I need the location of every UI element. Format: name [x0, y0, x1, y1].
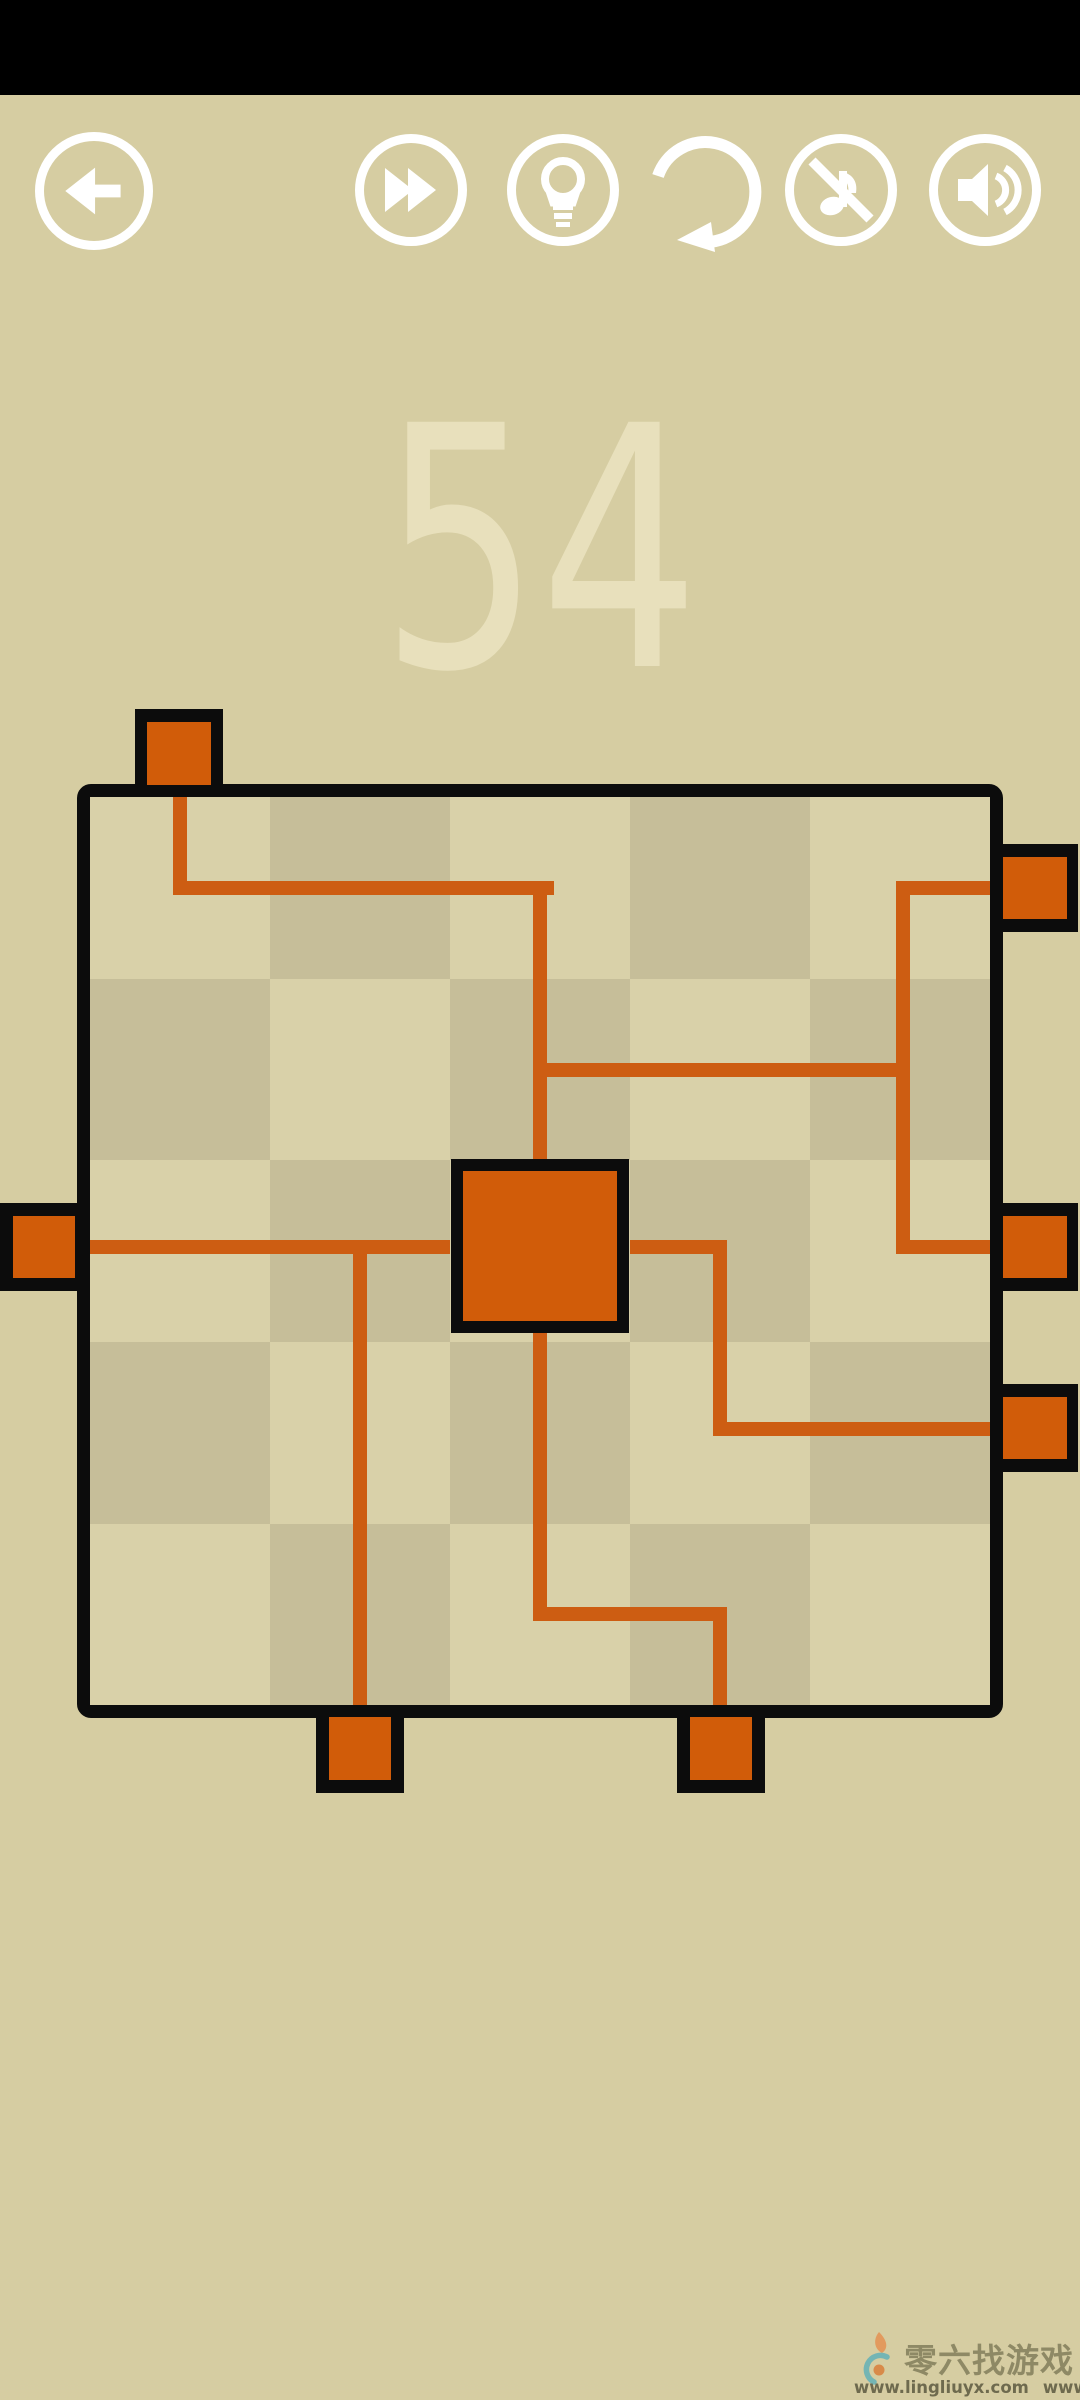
board-cell [810, 1524, 990, 1705]
pipe-segment [90, 1240, 450, 1254]
watermark: 零六找游戏 www.lingliuyx.comwww.06zyx.com [850, 2324, 1074, 2400]
board-cell [270, 979, 450, 1160]
game-screen: 54 零六找游戏 www.lingliuyx.comwww.06zyx.com [0, 0, 1080, 2400]
connector-socket-fill [329, 1717, 391, 1780]
watermark-urls: www.lingliuyx.comwww.06zyx.com [854, 2378, 1074, 2397]
connector-socket-fill [1003, 1397, 1067, 1459]
connector-socket-fill [690, 1717, 752, 1780]
status-bar [0, 0, 1080, 95]
back-arrow-icon [44, 141, 144, 241]
pipe-segment [896, 1240, 990, 1254]
pipe-segment [533, 1607, 727, 1621]
connector-socket-bottom[interactable] [316, 1705, 404, 1793]
sound-on-icon [938, 143, 1032, 237]
pipe-segment [533, 1330, 547, 1621]
level-number: 54 [135, 384, 945, 719]
watermark-title: 零六找游戏 [904, 2334, 1074, 2382]
connector-socket-top[interactable] [135, 709, 223, 797]
connector-socket-bottom[interactable] [677, 1705, 765, 1793]
connector-socket-fill [1003, 857, 1067, 919]
watermark-url-2: www.06zyx.com [1043, 2378, 1080, 2397]
pipe-segment [713, 1607, 727, 1705]
pipe-segment [896, 881, 910, 1254]
pipe-segment [533, 881, 547, 1159]
music-toggle-button[interactable] [785, 134, 897, 246]
connector-socket-fill [1003, 1216, 1067, 1278]
lightbulb-icon [516, 143, 610, 237]
music-off-icon [794, 143, 888, 237]
skip-level-button[interactable] [355, 134, 467, 246]
board-grid [90, 797, 990, 1705]
connector-socket-left[interactable] [0, 1203, 90, 1291]
back-button[interactable] [35, 132, 153, 250]
restart-button[interactable] [643, 130, 767, 254]
board-cell [630, 797, 810, 979]
hint-button[interactable] [507, 134, 619, 246]
connector-socket-right[interactable] [990, 1203, 1078, 1291]
pipe-segment [533, 1063, 910, 1077]
fast-forward-icon [364, 143, 458, 237]
connector-socket-fill [13, 1216, 75, 1278]
sound-toggle-button[interactable] [929, 134, 1041, 246]
pipe-segment [173, 881, 554, 895]
connector-socket-fill [147, 722, 211, 785]
connector-socket-right[interactable] [990, 1384, 1078, 1472]
puzzle-board[interactable] [77, 784, 1003, 1718]
center-block[interactable] [451, 1159, 629, 1333]
watermark-url-1: www.lingliuyx.com [854, 2378, 1029, 2397]
board-cell [90, 1342, 270, 1524]
restart-arrow-icon [643, 130, 767, 254]
pipe-segment [713, 1240, 727, 1436]
connector-socket-right[interactable] [990, 844, 1078, 932]
board-cell [90, 1524, 270, 1705]
pipe-segment [713, 1422, 990, 1436]
pipe-segment [896, 881, 990, 895]
board-cell [90, 979, 270, 1160]
pipe-segment [353, 1240, 367, 1705]
